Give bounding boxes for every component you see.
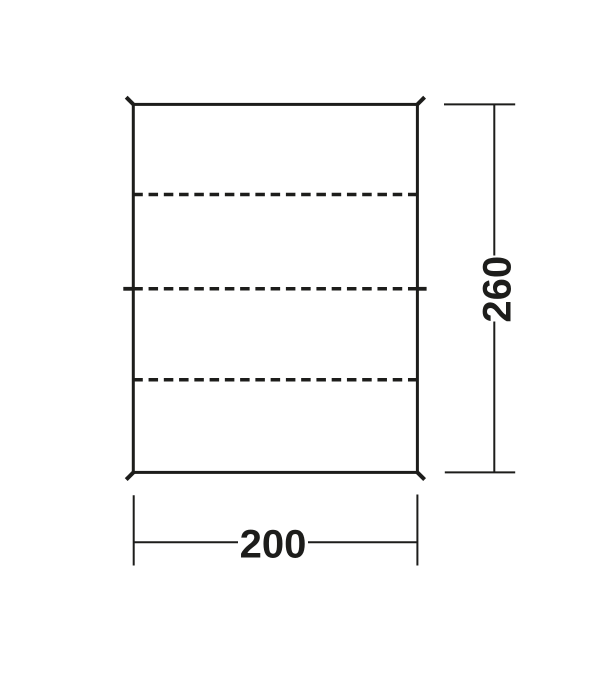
svg-text:200: 200	[240, 522, 307, 566]
svg-text:260: 260	[475, 256, 519, 323]
